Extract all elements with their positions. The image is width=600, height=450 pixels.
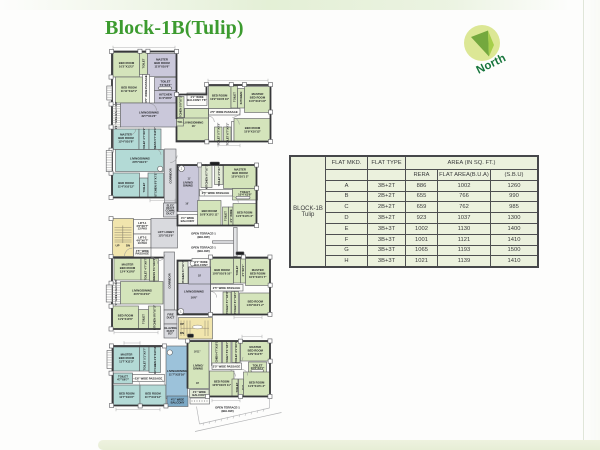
svg-text:13 PAX: 13 PAX: [138, 227, 148, 231]
svg-text:TOILET 6'7"X3'7": TOILET 6'7"X3'7": [233, 290, 237, 313]
svg-text:4'7"X6'7": 4'7"X6'7": [117, 377, 130, 381]
svg-text:11'2"X10'4 8": 11'2"X10'4 8": [249, 99, 267, 103]
svg-text:BALCONY: BALCONY: [192, 393, 206, 397]
svg-text:10'8"X10'2 11": 10'8"X10'2 11": [200, 212, 220, 216]
svg-text:TOILET: TOILET: [142, 314, 146, 324]
svg-text:20'0"X10'10": 20'0"X10'10": [134, 292, 151, 296]
svg-text:DINING: DINING: [193, 367, 203, 371]
svg-text:2'5" WIDE PASSAGE: 2'5" WIDE PASSAGE: [213, 286, 241, 290]
svg-text:16'11": 16'11": [194, 351, 201, 354]
svg-text:(BELOW): (BELOW): [197, 235, 209, 239]
svg-text:DRESS 5'1"X10'6": DRESS 5'1"X10'6": [152, 257, 156, 282]
svg-text:12'4"X10'8": 12'4"X10'8": [120, 269, 136, 273]
svg-text:CORRIDOR: CORRIDOR: [168, 273, 172, 288]
svg-text:PASSAGE: PASSAGE: [136, 252, 150, 256]
svg-text:2'5" WIDE PASSAGE: 2'5" WIDE PASSAGE: [202, 191, 230, 195]
svg-text:UP: UP: [116, 244, 120, 248]
svg-text:11'7"X11'3": 11'7"X11'3": [119, 359, 135, 363]
svg-text:TOILET: TOILET: [235, 265, 239, 275]
svg-text:11'3"X10'1 3": 11'3"X10'1 3": [248, 384, 266, 388]
svg-text:11'7"X10'13": 11'7"X10'13": [145, 395, 162, 399]
svg-text:UP: UP: [180, 322, 184, 326]
svg-text:8'2": 8'2": [168, 332, 174, 336]
svg-text:DINING: DINING: [183, 184, 193, 188]
svg-text:TOILET 4'7"X8'1": TOILET 4'7"X8'1": [142, 127, 146, 150]
svg-text:10'2"X10'8 10": 10'2"X10'8 10": [210, 97, 230, 101]
svg-text:12'5"X13'9": 12'5"X13'9": [158, 233, 174, 237]
svg-text:(BELOW): (BELOW): [197, 249, 209, 253]
svg-text:11'9"X10'6": 11'9"X10'6": [118, 317, 134, 321]
svg-text:TOILET 5'7"X3'3": TOILET 5'7"X3'3": [225, 290, 229, 313]
svg-text:BALCONY: BALCONY: [194, 263, 208, 267]
svg-text:12'9"X10'1 2": 12'9"X10'1 2": [231, 174, 249, 178]
svg-text:13 PAX: 13 PAX: [138, 241, 148, 245]
svg-text:20'5"X10'4": 20'5"X10'4": [132, 160, 148, 164]
svg-text:3'5" WIDE PASSAGE: 3'5" WIDE PASSAGE: [144, 75, 148, 103]
svg-text:11'8"X10'6": 11'8"X10'6": [154, 64, 170, 68]
svg-text:KITCHEN: KITCHEN: [239, 92, 243, 104]
svg-text:TOILET 4'7"X8'7": TOILET 4'7"X8'7": [143, 257, 147, 280]
svg-text:11'7"X10'2": 11'7"X10'2": [119, 395, 135, 399]
svg-text:7'4"X3'3": 7'4"X3'3": [159, 83, 172, 87]
svg-text:11'4"X6'6": 11'4"X6'6": [159, 96, 173, 100]
svg-text:DUCT: DUCT: [167, 315, 175, 319]
svg-text:11': 11': [187, 178, 191, 181]
svg-text:13'9"X11'5": 13'9"X11'5": [248, 352, 264, 356]
svg-text:16'6": 16'6": [191, 296, 198, 300]
svg-text:LIVING/DINING: LIVING/DINING: [184, 290, 204, 294]
svg-text:BALCONY 7'8": BALCONY 7'8": [187, 98, 207, 102]
svg-text:15'9"X10'12": 15'9"X10'12": [244, 129, 261, 133]
svg-text:14'9"X10'1 2": 14'9"X10'1 2": [247, 303, 265, 307]
svg-text:10'3"X10'4 7": 10'3"X10'4 7": [249, 275, 267, 279]
svg-text:KITCHEN 8'0"X7'2": KITCHEN 8'0"X7'2": [154, 172, 158, 198]
svg-text:KITCHEN 5'8"X7'2": KITCHEN 5'8"X7'2": [178, 94, 182, 120]
svg-text:11'11"X12'1": 11'11"X12'1": [121, 89, 138, 93]
svg-text:10'2"X13'2": 10'2"X13'2": [119, 64, 135, 68]
svg-text:22'7"X11'6": 22'7"X11'6": [141, 114, 157, 118]
svg-text:DRESS 5'7"X10'6": DRESS 5'7"X10'6": [153, 126, 157, 151]
svg-text:KITCHEN 4'2"X10'10": KITCHEN 4'2"X10'10": [153, 345, 157, 374]
svg-text:(BELOW): (BELOW): [221, 409, 233, 413]
svg-text:4'1" WIDE: 4'1" WIDE: [229, 209, 233, 222]
svg-text:TOILET: TOILET: [142, 182, 146, 192]
svg-text:2'5" WIDE PASSAGE: 2'5" WIDE PASSAGE: [210, 110, 238, 114]
svg-text:TOI.: TOI.: [177, 120, 183, 124]
svg-text:11'2"X10'1 6": 11'2"X10'1 6": [236, 214, 254, 218]
svg-text:2'5" WIDE PASSAGE: 2'5" WIDE PASSAGE: [213, 365, 241, 369]
svg-text:18': 18': [196, 382, 200, 385]
svg-text:KITCHEN 8'0"X7'2": KITCHEN 8'0"X7'2": [153, 304, 157, 330]
svg-text:KITCHEN 6'7"X7'7": KITCHEN 6'7"X7'7": [181, 259, 185, 285]
svg-text:18': 18': [198, 275, 202, 278]
svg-text:10'8"X10'8 10": 10'8"X10'8 10": [212, 271, 232, 275]
svg-text:BALCONY: BALCONY: [171, 400, 185, 404]
svg-text:CORRIDOR: CORRIDOR: [169, 168, 173, 183]
svg-text:11'4"X10'12": 11'4"X10'12": [118, 184, 135, 188]
svg-text:DUCT: DUCT: [166, 211, 174, 215]
svg-text:4'7"X8'1": 4'7"X8'1": [241, 264, 245, 277]
svg-text:4'1" WIDE BALCONY: 4'1" WIDE BALCONY: [114, 101, 118, 129]
svg-text:TOILET 4'7"X7'7": TOILET 4'7"X7'7": [217, 163, 221, 186]
svg-text:TOILET: TOILET: [224, 211, 228, 221]
svg-text:DN: DN: [180, 331, 184, 335]
svg-text:TOILET 3'1"X8'1": TOILET 3'1"X8'1": [234, 340, 238, 363]
svg-text:16': 16': [185, 203, 189, 206]
svg-text:TOILET 5'1"X3'7": TOILET 5'1"X3'7": [142, 347, 146, 370]
svg-text:KITCHEN 6'7"X7'7": KITCHEN 6'7"X7'7": [205, 163, 209, 189]
svg-text:12'4"X10'8": 12'4"X10'8": [118, 139, 134, 143]
svg-text:16': 16': [192, 124, 196, 128]
svg-text:11'7"X22'16": 11'7"X22'16": [169, 372, 186, 376]
svg-text:TOILET 5'1"X3'7": TOILET 5'1"X3'7": [225, 340, 229, 363]
svg-text:TOILET: TOILET: [232, 92, 236, 102]
svg-text:TOILET: TOILET: [142, 58, 146, 68]
svg-text:DN: DN: [126, 244, 130, 248]
svg-text:4'1" WIDE BALCONY: 4'1" WIDE BALCONY: [114, 279, 118, 307]
svg-text:BALCONY: BALCONY: [181, 219, 195, 223]
svg-text:10'8"X10'2 11": 10'8"X10'2 11": [212, 383, 232, 387]
